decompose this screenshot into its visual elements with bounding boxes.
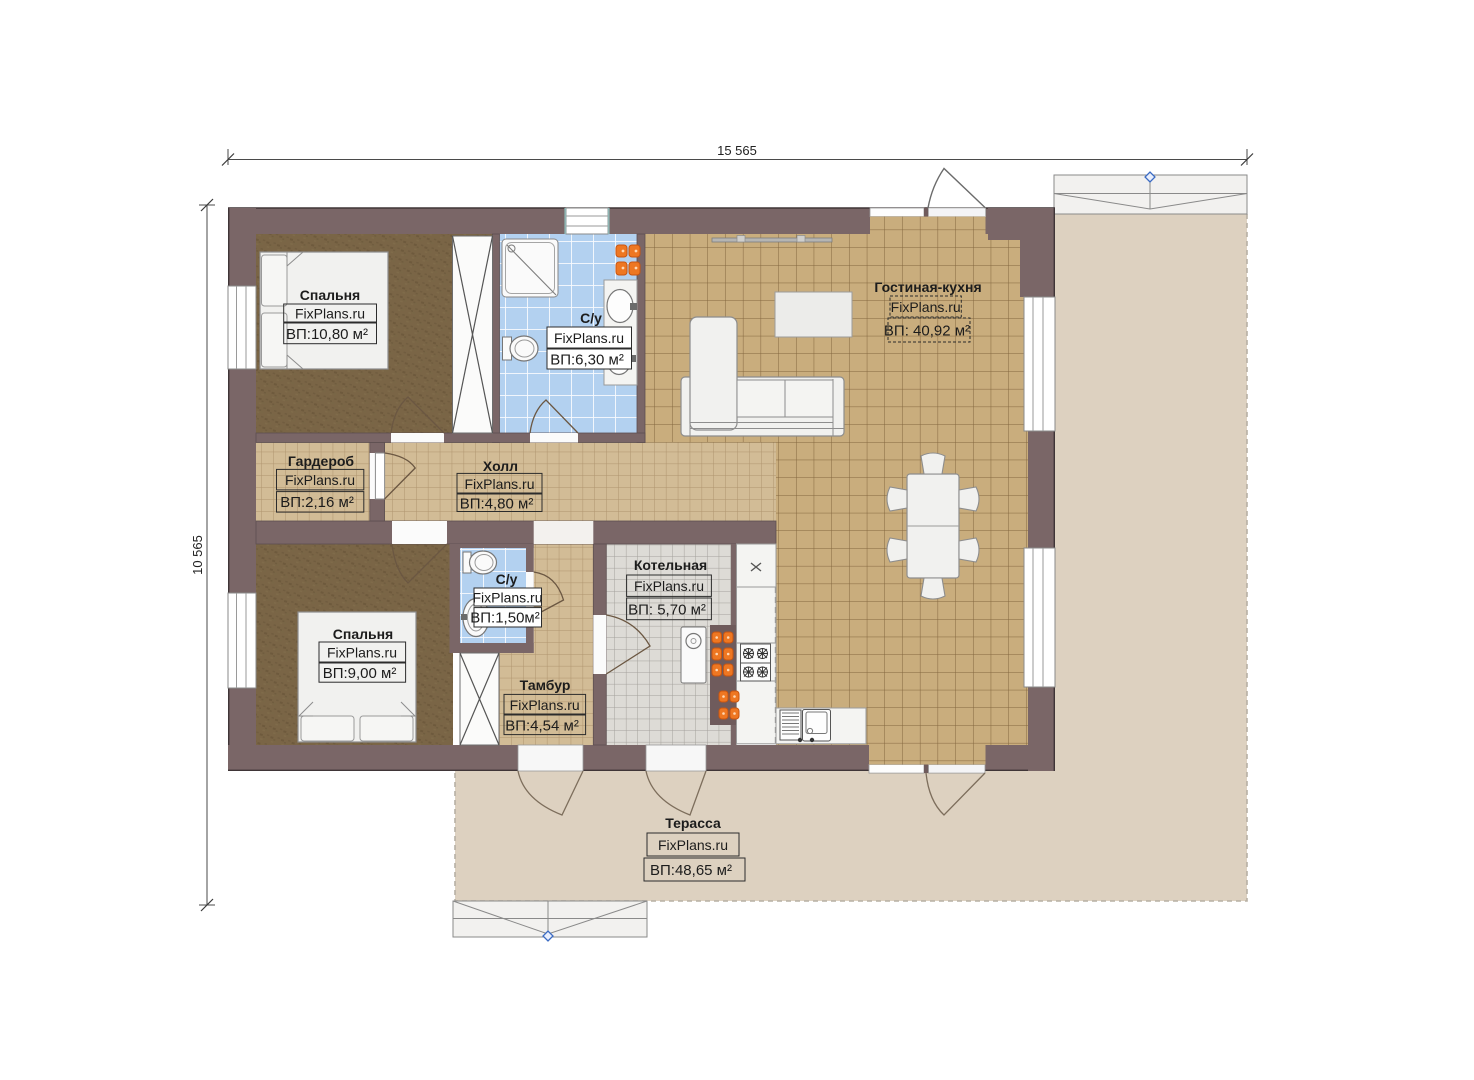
svg-text:FixPlans.ru: FixPlans.ru <box>285 472 355 488</box>
svg-text:ВП:2,16 м²: ВП:2,16 м² <box>280 494 354 511</box>
svg-text:ВП: 5,70 м²: ВП: 5,70 м² <box>628 602 706 619</box>
svg-text:С/у: С/у <box>580 310 602 326</box>
svg-text:10 565: 10 565 <box>190 535 205 575</box>
svg-text:Гостиная-кухня: Гостиная-кухня <box>874 279 981 295</box>
svg-text:ВП: 40,92 м²: ВП: 40,92 м² <box>884 323 970 340</box>
svg-text:FixPlans.ru: FixPlans.ru <box>295 306 365 322</box>
svg-text:Гардероб: Гардероб <box>288 453 355 469</box>
svg-text:Котельная: Котельная <box>634 557 707 573</box>
svg-text:С/у: С/у <box>496 571 518 587</box>
svg-text:Спальня: Спальня <box>300 287 360 303</box>
svg-text:ВП:4,54 м²: ВП:4,54 м² <box>505 718 579 735</box>
svg-text:Холл: Холл <box>483 458 518 474</box>
svg-text:ВП:9,00 м²: ВП:9,00 м² <box>323 665 397 682</box>
svg-text:ВП:10,80 м²: ВП:10,80 м² <box>286 326 368 343</box>
svg-text:Терасса: Терасса <box>665 815 721 831</box>
svg-text:FixPlans.ru: FixPlans.ru <box>634 578 704 594</box>
svg-text:FixPlans.ru: FixPlans.ru <box>658 837 728 853</box>
svg-text:Спальня: Спальня <box>333 626 393 642</box>
svg-text:FixPlans.ru: FixPlans.ru <box>510 697 580 713</box>
svg-text:ВП:1,50м²: ВП:1,50м² <box>470 610 539 627</box>
svg-text:15 565: 15 565 <box>717 143 757 158</box>
svg-text:FixPlans.ru: FixPlans.ru <box>554 330 624 346</box>
svg-text:FixPlans.ru: FixPlans.ru <box>891 299 961 315</box>
svg-text:ВП:6,30 м²: ВП:6,30 м² <box>550 352 624 369</box>
svg-text:FixPlans.ru: FixPlans.ru <box>472 590 542 606</box>
svg-text:ВП:4,80 м²: ВП:4,80 м² <box>460 496 534 513</box>
svg-text:FixPlans.ru: FixPlans.ru <box>327 645 397 661</box>
svg-text:Тамбур: Тамбур <box>520 677 571 693</box>
svg-text:FixPlans.ru: FixPlans.ru <box>464 476 534 492</box>
svg-text:ВП:48,65 м²: ВП:48,65 м² <box>650 862 732 879</box>
